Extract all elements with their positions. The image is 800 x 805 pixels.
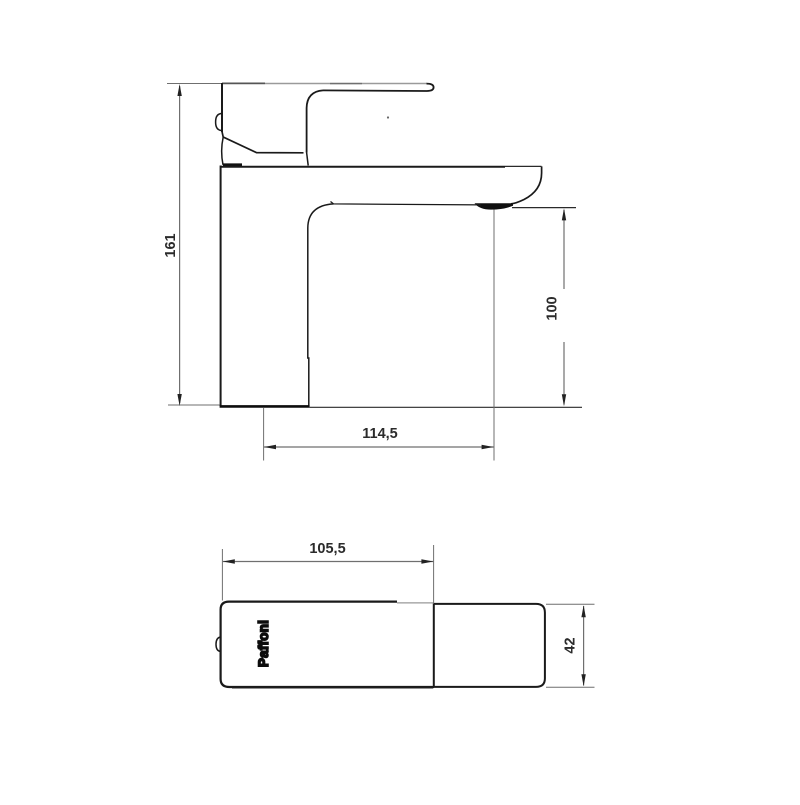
svg-text:105,5: 105,5 <box>309 541 345 557</box>
svg-text:161: 161 <box>163 233 179 257</box>
svg-text:114,5: 114,5 <box>362 426 398 442</box>
svg-text:100: 100 <box>544 296 560 320</box>
svg-text:42: 42 <box>562 637 578 653</box>
svg-text:Paffoni: Paffoni <box>256 620 271 667</box>
